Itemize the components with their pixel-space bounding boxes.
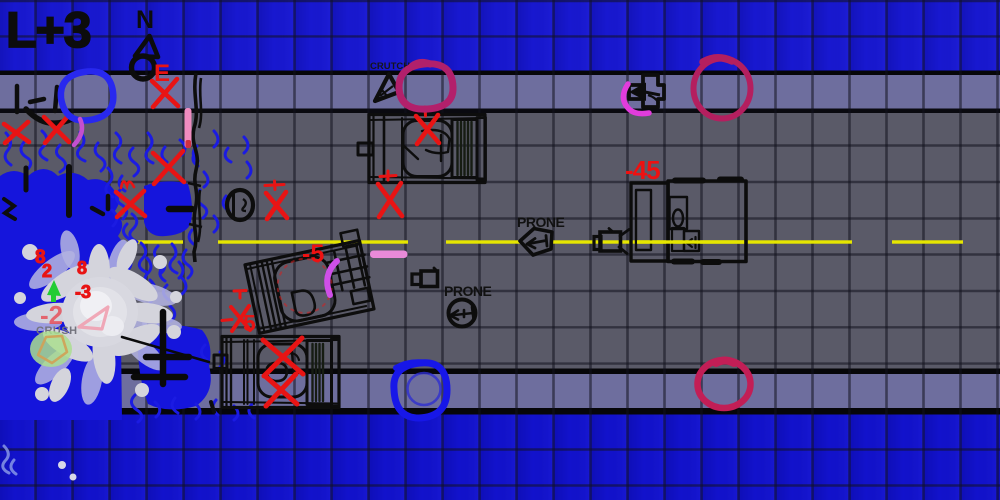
svg-text:PRONE: PRONE bbox=[444, 283, 491, 299]
svg-text:5: 5 bbox=[243, 310, 256, 336]
svg-text:2: 2 bbox=[42, 261, 52, 281]
svg-text:-45: -45 bbox=[625, 155, 660, 185]
svg-text:-3: -3 bbox=[75, 282, 91, 302]
svg-text:-2: -2 bbox=[40, 300, 63, 330]
svg-text:N: N bbox=[136, 6, 154, 34]
svg-text:8: 8 bbox=[77, 258, 87, 278]
svg-text:E: E bbox=[154, 60, 170, 87]
svg-text:-5: -5 bbox=[302, 240, 324, 268]
svg-text:PRONE: PRONE bbox=[517, 214, 564, 230]
svg-text:L+3: L+3 bbox=[6, 2, 91, 58]
